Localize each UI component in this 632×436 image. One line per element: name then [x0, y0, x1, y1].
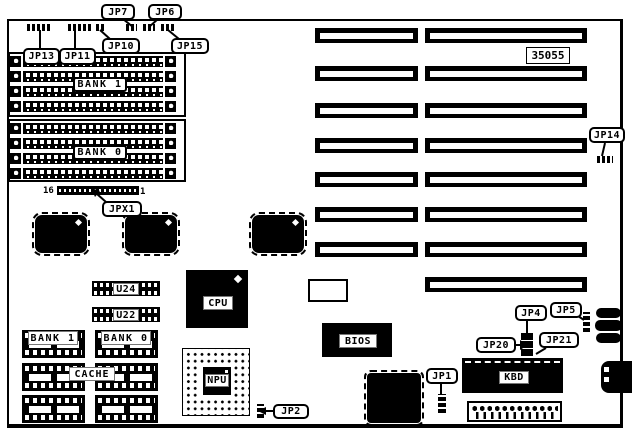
- simm-module: [10, 123, 176, 134]
- jumper-jp5: [583, 312, 590, 332]
- cache-chip: [22, 395, 85, 423]
- jumper-label-jp2: JP2: [273, 404, 309, 419]
- isa-slot-segment: [315, 138, 418, 153]
- isa-slot-segment: [315, 242, 418, 257]
- power-connector-pins-square: [471, 412, 558, 419]
- isa-slot-segment: [315, 28, 418, 43]
- jumper-jp10: [96, 24, 105, 31]
- u22-label: U22: [113, 309, 139, 321]
- kbd-label: KBD: [499, 371, 529, 384]
- din-connector: [595, 308, 622, 344]
- isa-slot-segment: [425, 207, 587, 222]
- isa-slot-segment: [315, 66, 418, 81]
- jpx1-pin1-label: 1: [140, 187, 145, 197]
- jpx1-header: [57, 186, 139, 195]
- power-connector: [467, 401, 562, 422]
- qfp-chip: [367, 373, 421, 423]
- jumper-label-jp7: JP7: [101, 4, 135, 20]
- part-number-label: 35055: [526, 47, 570, 64]
- motherboard-diagram: { "part_number": "35055", "labels": { "j…: [0, 0, 632, 436]
- isa-slot-segment: [425, 277, 587, 292]
- jumper-jp2: [257, 404, 264, 418]
- jumper-jp11: [68, 24, 92, 31]
- oscillator-socket: [308, 279, 348, 302]
- isa-slot-segment: [425, 138, 587, 153]
- isa-slot-segment: [315, 103, 418, 118]
- isa-slot-segment: [425, 66, 587, 81]
- cache-bank0-label: BANK 0: [101, 331, 151, 345]
- jumper-label-jpx1: JPX1: [102, 201, 142, 217]
- u24-label: U24: [113, 283, 139, 295]
- jumper-jp6: [143, 24, 155, 31]
- jumper-label-jp14: JP14: [589, 127, 625, 143]
- plcc-chip: [35, 215, 87, 253]
- jumper-label-jp20: JP20: [476, 337, 516, 353]
- jumper-jp15: [161, 24, 174, 31]
- edge-connector: [601, 361, 632, 393]
- simm-bank1-label: BANK 1: [73, 77, 127, 92]
- jumper-jp13: [27, 24, 51, 31]
- jumper-label-jp21: JP21: [539, 332, 579, 348]
- simm-module: [10, 168, 176, 179]
- cache-bank1-label: BANK 1: [28, 331, 78, 345]
- cache-label: CACHE: [69, 367, 115, 381]
- jumper-label-jp1: JP1: [426, 368, 458, 384]
- npu-label: NPU: [205, 374, 229, 387]
- jumper-label-jp15: JP15: [171, 38, 209, 54]
- isa-slot-segment: [425, 242, 587, 257]
- jumper-label-jp4: JP4: [515, 305, 547, 321]
- jumper-jp7: [126, 24, 137, 31]
- jumper-label-jp13: JP13: [23, 48, 60, 65]
- simm-module: [10, 101, 176, 112]
- jumper-jp1: [438, 394, 446, 413]
- bios-label: BIOS: [339, 334, 377, 348]
- jumper-jp14: [597, 156, 613, 163]
- isa-slot-segment: [425, 172, 587, 187]
- plcc-chip: [252, 215, 304, 253]
- cpu-label: CPU: [203, 296, 233, 310]
- simm-bank0-label: BANK 0: [73, 145, 127, 160]
- jumper-label-jp11: JP11: [59, 48, 96, 65]
- cache-chip: [95, 395, 158, 423]
- jpx1-pin16-label: 16: [43, 186, 54, 196]
- jumper-stack-jp4-jp20-jp21: [521, 333, 533, 356]
- plcc-chip: [125, 215, 177, 253]
- jumper-label-jp5: JP5: [550, 302, 582, 318]
- isa-slot-segment: [425, 28, 587, 43]
- isa-slot-segment: [425, 103, 587, 118]
- jumper-label-jp6: JP6: [148, 4, 182, 20]
- isa-slot-segment: [315, 207, 418, 222]
- isa-slot-segment: [315, 172, 418, 187]
- jumper-label-jp10: JP10: [102, 38, 140, 54]
